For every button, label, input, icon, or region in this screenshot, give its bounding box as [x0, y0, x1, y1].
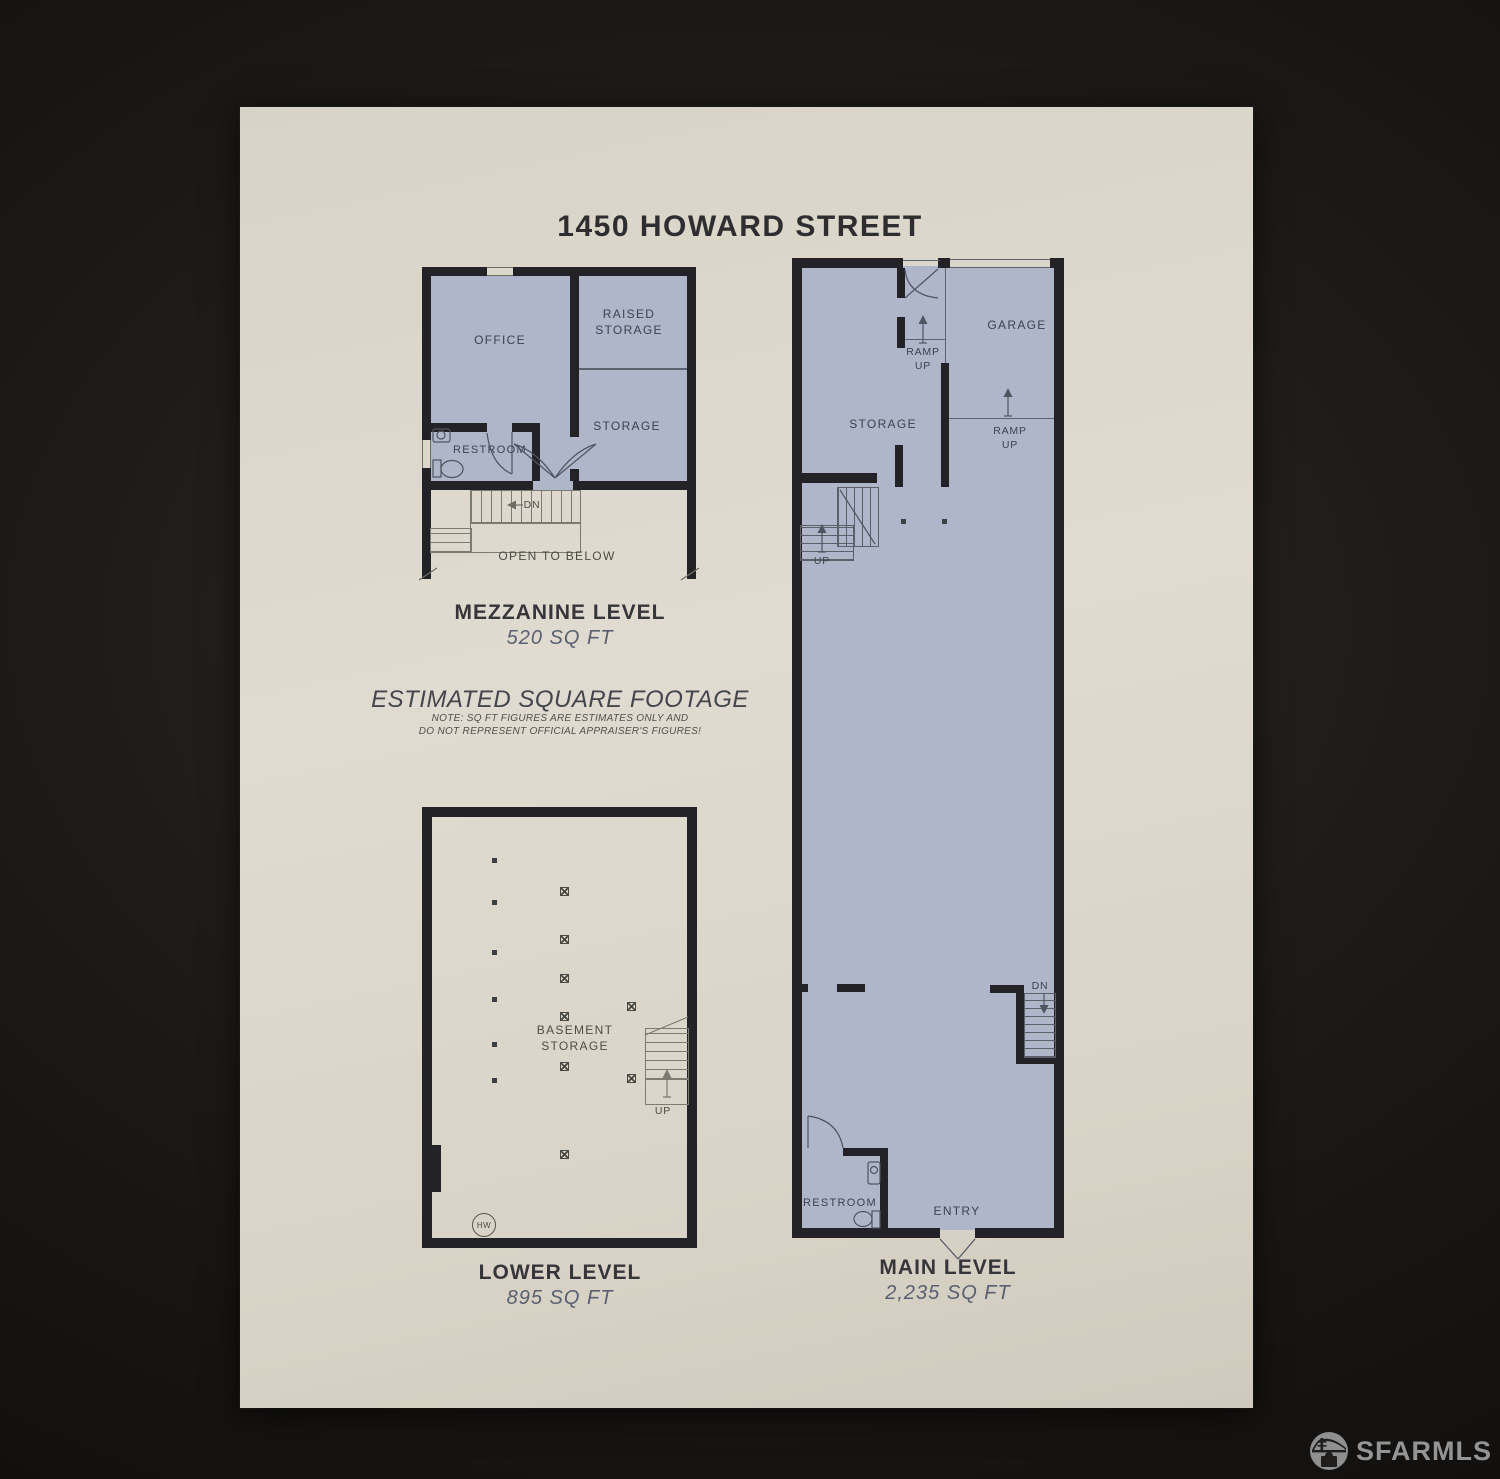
sfarmls-watermark: SFARMLS: [1309, 1431, 1492, 1471]
lower-level-title: LOWER LEVEL: [479, 1261, 642, 1285]
lower-linework: [422, 807, 697, 1252]
main-level-title: MAIN LEVEL: [879, 1256, 1016, 1280]
sqft-note-line2: DO NOT REPRESENT OFFICIAL APPRAISER'S FI…: [419, 726, 701, 737]
down-arrow-icon: [1040, 1005, 1049, 1014]
sqft-note-line1: NOTE: SQ FT FIGURES ARE ESTIMATES ONLY A…: [432, 713, 689, 724]
mezzanine-plan: OFFICE RAISED STORAGE STORAGE RESTROOM D…: [422, 267, 696, 602]
sqft-disclaimer-heading: ESTIMATED SQUARE FOOTAGE: [371, 686, 749, 714]
up-arrow-icon: [818, 524, 827, 533]
main-level-area: 2,235 SQ FT: [885, 1282, 1011, 1305]
floorplan-sheet: 1450 HOWARD STREET OFFICE RAIS: [240, 107, 1253, 1408]
main-linework: [792, 258, 1064, 1263]
sfarmls-logo-icon: [1309, 1431, 1349, 1471]
up-arrow-icon: [1004, 388, 1013, 397]
page-title: 1450 HOWARD STREET: [557, 210, 922, 244]
mezzanine-level-area: 520 SQ FT: [507, 627, 614, 650]
mezzanine-linework: [422, 267, 696, 602]
up-arrow-icon: [663, 1069, 672, 1078]
mezzanine-level-title: MEZZANINE LEVEL: [454, 601, 665, 625]
photo-background: 1450 HOWARD STREET OFFICE RAIS: [0, 0, 1500, 1479]
left-arrow-icon: [507, 501, 516, 510]
up-arrow-icon: [919, 315, 928, 324]
main-level-plan: GARAGE RAMP UP STORAGE RAMP UP UP DN RES…: [792, 258, 1064, 1263]
lower-level-plan: HW BASEMENT STORAGE UP: [422, 807, 697, 1252]
lower-level-area: 895 SQ FT: [507, 1287, 614, 1310]
sfarmls-brand-text: SFARMLS: [1356, 1436, 1492, 1467]
